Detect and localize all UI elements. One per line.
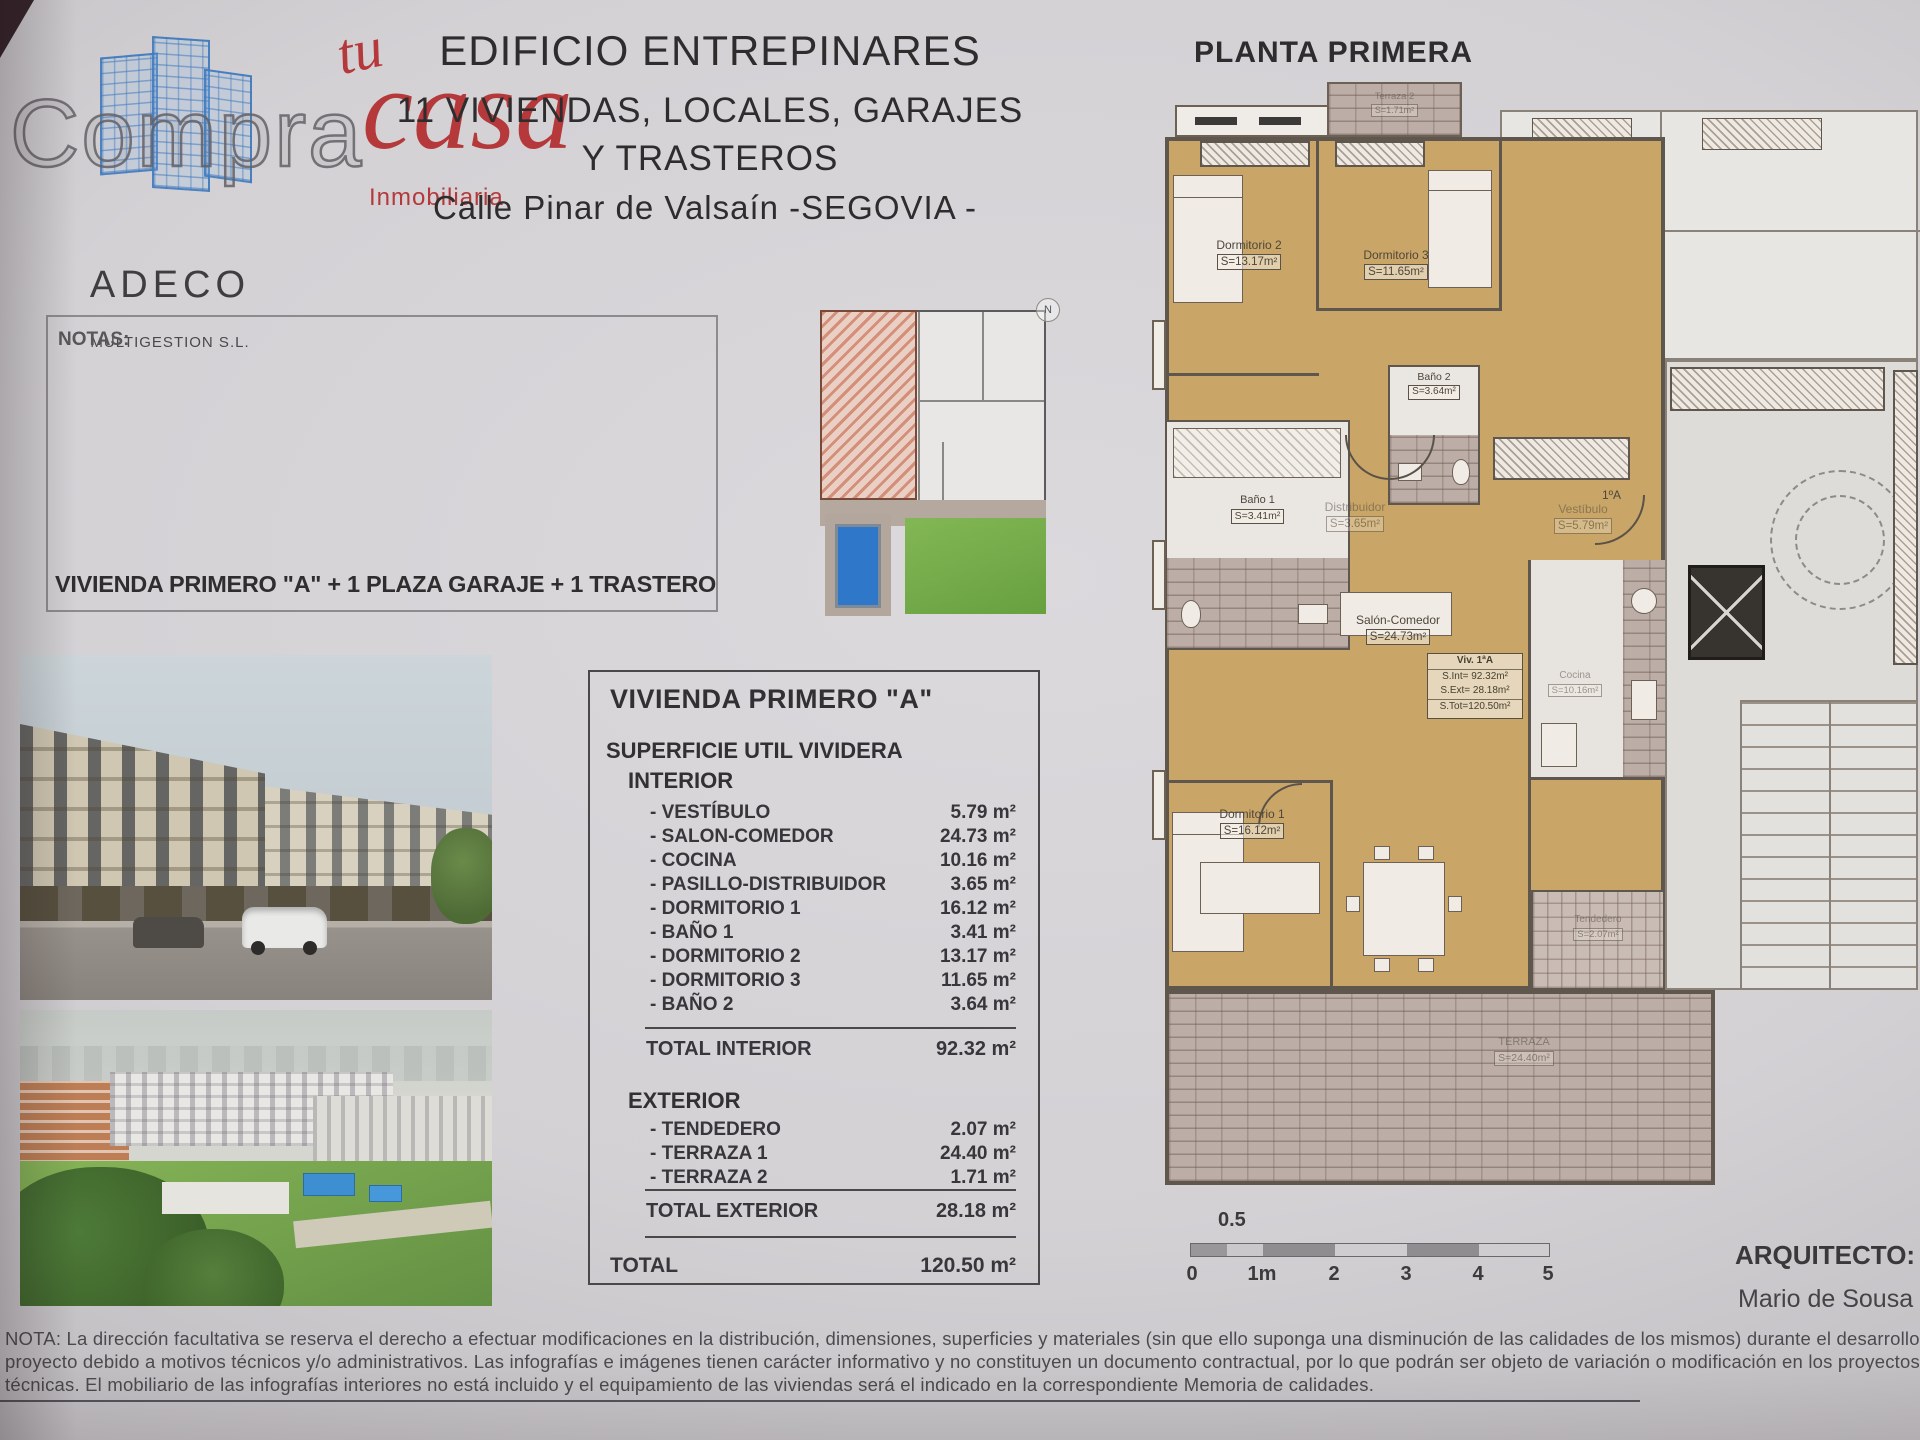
- floor-plan: Terraza 2 S=1.71m² Dormitorio 2 S=13.17m…: [1140, 70, 1920, 1190]
- row-value: 13.17 m²: [940, 946, 1016, 968]
- room-cocina: Cocina S=10.16m²: [1531, 560, 1665, 780]
- row-label: - BAÑO 1: [650, 922, 733, 943]
- vestibule-wardrobe: [1493, 437, 1630, 480]
- chair: [1346, 896, 1360, 912]
- bathtub: [1173, 428, 1341, 478]
- disclaimer-line: proyecto debido a motivos técnicos y/o a…: [5, 1351, 1920, 1373]
- chair: [1374, 846, 1390, 860]
- row-value: 120.50 m²: [920, 1254, 1016, 1278]
- plan-title: PLANTA PRIMERA: [1194, 36, 1473, 69]
- info-line: S.Tot=120.50m²: [1428, 699, 1522, 715]
- room-area: S=10.16m²: [1548, 684, 1603, 698]
- window-bay: [1152, 320, 1166, 390]
- room-name: Dormitorio 2: [1185, 238, 1313, 253]
- scale-tick: 0: [1186, 1263, 1197, 1286]
- front-gallery: [1175, 105, 1330, 137]
- room-dormitorio-1-label: Dormitorio 1 S=16.12m²: [1188, 807, 1316, 839]
- chair: [1418, 846, 1434, 860]
- disclaimer-line: técnicas. El mobiliario de las infografí…: [5, 1374, 1920, 1396]
- row-label: - TERRAZA 1: [650, 1143, 768, 1164]
- communal-closet-band: [1670, 367, 1885, 411]
- scanned-property-sheet: Compra tu casa Inmobiliaria ADECO MULTIG…: [0, 0, 1920, 1440]
- row-value: 24.40 m²: [940, 1143, 1016, 1165]
- photo-low-building: [162, 1182, 289, 1215]
- table-row: - BAÑO 23.64 m²: [650, 994, 1016, 1018]
- row-value: 11.65 m²: [941, 970, 1016, 992]
- row-value: 16.12 m²: [940, 898, 1016, 920]
- surface-table: VIVIENDA PRIMERO "A" SUPERFICIE UTIL VIV…: [588, 670, 1040, 1285]
- key-plan-pool: [835, 524, 881, 608]
- wall: [1316, 308, 1502, 311]
- room-name: Distribuidor: [1290, 500, 1420, 515]
- room-dormitorio-2-label: Dormitorio 2 S=13.17m²: [1185, 238, 1313, 270]
- table-row: - DORMITORIO 213.17 m²: [650, 946, 1016, 970]
- total-interior-row: TOTAL INTERIOR92.32 m²: [646, 1038, 1016, 1062]
- photo-white-slab: [313, 1096, 492, 1164]
- entry-door-label: 1ºA: [1602, 488, 1621, 502]
- table-row: - BAÑO 13.41 m²: [650, 922, 1016, 946]
- table-row: - PASILLO-DISTRIBUIDOR3.65 m²: [650, 874, 1016, 898]
- table-divider: [645, 1236, 1016, 1238]
- room-area: S=24.40m²: [1494, 1051, 1554, 1066]
- table-row: - TERRAZA 21.71 m²: [650, 1167, 1016, 1191]
- photo-corner-shadow: [0, 0, 34, 58]
- room-area: S=3.65m²: [1326, 516, 1384, 532]
- row-label: - VESTÍBULO: [650, 802, 770, 823]
- footer-rule: [0, 1400, 1640, 1402]
- table-row: - VESTÍBULO5.79 m²: [650, 802, 1016, 826]
- sink: [1298, 604, 1328, 624]
- row-label: TOTAL EXTERIOR: [646, 1200, 818, 1222]
- photo-pool: [369, 1185, 402, 1203]
- room-terraza-grande: TERRAZA S=24.40m²: [1165, 990, 1715, 1185]
- row-label: - DORMITORIO 2: [650, 946, 801, 967]
- wall: [1316, 137, 1319, 310]
- stair-core-circle-inner: [1795, 495, 1885, 585]
- unit-summary-line: VIVIENDA PRIMERO "A" + 1 PLAZA GARAJE + …: [55, 571, 715, 598]
- chair: [1418, 958, 1434, 972]
- room-area: S=16.12m²: [1220, 823, 1285, 839]
- row-label: - DORMITORIO 3: [650, 970, 801, 991]
- watermark-compra: Compra: [10, 86, 363, 182]
- doc-subtitle-1: 11 VIVIENDAS, LOCALES, GARAJES: [380, 92, 1040, 131]
- room-area: S=1.71m²: [1371, 104, 1418, 117]
- chair: [1448, 896, 1462, 912]
- toilet: [1452, 459, 1470, 485]
- scale-half-label: 0.5: [1218, 1209, 1246, 1232]
- side-balcony: [1893, 370, 1918, 665]
- elevator-shaft: [1688, 565, 1765, 660]
- room-salon-label: Salón-Comedor S=24.73m²: [1338, 613, 1458, 645]
- exterior-section-label: EXTERIOR: [628, 1088, 740, 1114]
- doc-title: EDIFICIO ENTREPINARES: [400, 28, 1020, 74]
- row-label: - PASILLO-DISTRIBUIDOR: [650, 874, 886, 895]
- row-value: 28.18 m²: [936, 1200, 1016, 1223]
- table-row: - SALON-COMEDOR24.73 m²: [650, 826, 1016, 850]
- architect-label: ARQUITECTO:: [1735, 1240, 1915, 1271]
- architect-name: Mario de Sousa Sanch: [1738, 1285, 1920, 1314]
- table-divider: [645, 1027, 1016, 1029]
- scale-tick: 4: [1472, 1263, 1483, 1286]
- key-plan: N: [820, 296, 1065, 618]
- wall: [1165, 373, 1319, 376]
- table-divider: [645, 1189, 1016, 1191]
- room-name: Cocina: [1535, 670, 1615, 683]
- row-value: 3.64 m²: [951, 994, 1016, 1016]
- key-plan-highlighted-unit: [820, 310, 917, 500]
- kitchen-sink: [1631, 588, 1657, 614]
- room-tendedero: Tendedero S=2.07m²: [1531, 890, 1665, 990]
- row-value: 3.41 m²: [951, 922, 1016, 944]
- doc-address: Calle Pinar de Valsaín -SEGOVIA -: [375, 190, 1035, 226]
- doc-subtitle-2: Y TRASTEROS: [380, 140, 1040, 179]
- wall: [1499, 137, 1502, 310]
- wall: [1330, 780, 1333, 990]
- room-distribuidor-label: Distribuidor S=3.65m²: [1290, 500, 1420, 532]
- scale-tick: 2: [1328, 1263, 1339, 1286]
- room-area: S=24.73m²: [1366, 629, 1431, 645]
- fridge: [1541, 723, 1577, 767]
- surface-table-subtitle: SUPERFICIE UTIL VIVIDERA: [606, 738, 903, 764]
- scale-tick: 5: [1542, 1263, 1553, 1286]
- notas-label: NOTAS:: [58, 329, 129, 351]
- info-line: S.Int= 92.32m²: [1428, 670, 1522, 685]
- table-row: - TENDEDERO2.07 m²: [650, 1119, 1016, 1143]
- table-row: - COCINA10.16 m²: [650, 850, 1016, 874]
- window-bay: [1152, 540, 1166, 610]
- room-bano-1: Baño 1 S=3.41m²: [1165, 420, 1350, 650]
- table-row: - DORMITORIO 116.12 m²: [650, 898, 1016, 922]
- scale-bar-strip: [1190, 1243, 1550, 1257]
- photo-shrub: [431, 828, 492, 925]
- table-row: - DORMITORIO 311.65 m²: [650, 970, 1016, 994]
- interior-section-label: INTERIOR: [628, 768, 733, 794]
- photo-street-view: [20, 655, 492, 1000]
- info-line: S.Ext= 28.18m²: [1428, 684, 1522, 699]
- window-bay: [1152, 770, 1166, 840]
- row-value: 10.16 m²: [940, 850, 1016, 872]
- compass-icon: N: [1036, 298, 1060, 322]
- row-label: TOTAL: [610, 1254, 678, 1277]
- row-value: 92.32 m²: [936, 1038, 1016, 1061]
- row-label: - BAÑO 2: [650, 994, 733, 1015]
- room-dormitorio-3-label: Dormitorio 3 S=11.65m²: [1332, 248, 1460, 280]
- wall: [1165, 780, 1333, 783]
- room-area: S=13.17m²: [1217, 254, 1282, 270]
- unit-info-box: Viv. 1ªA S.Int= 92.32m² S.Ext= 28.18m² S…: [1427, 653, 1523, 719]
- scale-tick: 1m: [1248, 1263, 1277, 1286]
- room-area: S=2.07m²: [1573, 928, 1622, 942]
- stove: [1631, 680, 1657, 720]
- photo-aerial-view: [20, 1010, 492, 1306]
- communal-stairs: [1740, 700, 1918, 990]
- sofa: [1200, 862, 1320, 914]
- row-value: 3.65 m²: [951, 874, 1016, 896]
- wardrobe: [1200, 141, 1310, 167]
- info-line: Viv. 1ªA: [1428, 654, 1522, 670]
- chair: [1374, 958, 1390, 972]
- room-area: S=3.41m²: [1231, 509, 1285, 524]
- wardrobe: [1335, 141, 1425, 167]
- row-value: 24.73 m²: [940, 826, 1016, 848]
- key-plan-garden: [905, 518, 1046, 614]
- dining-table: [1363, 862, 1445, 956]
- room-area: S=3.64m²: [1408, 385, 1460, 400]
- row-value: 1.71 m²: [951, 1167, 1016, 1189]
- scale-tick: 3: [1400, 1263, 1411, 1286]
- row-label: TOTAL INTERIOR: [646, 1038, 812, 1060]
- adeco-wordmark: ADECO: [80, 264, 260, 307]
- row-label: - COCINA: [650, 850, 737, 871]
- photo-car-dark: [133, 917, 204, 948]
- notas-box: NOTAS:: [46, 315, 718, 612]
- toilet: [1181, 600, 1201, 628]
- room-name: Tendedero: [1533, 914, 1663, 927]
- scale-bar: 0.5 0 1m 2 3 4 5: [1190, 1243, 1550, 1303]
- room-name: Dormitorio 3: [1332, 248, 1460, 263]
- row-label: - TERRAZA 2: [650, 1167, 768, 1188]
- row-label: - DORMITORIO 1: [650, 898, 801, 919]
- row-value: 5.79 m²: [951, 802, 1016, 824]
- row-label: - TENDEDERO: [650, 1119, 781, 1140]
- room-name: Salón-Comedor: [1338, 613, 1458, 628]
- row-value: 2.07 m²: [951, 1119, 1016, 1141]
- surface-table-title: VIVIENDA PRIMERO "A": [610, 684, 933, 715]
- table-row: - TERRAZA 124.40 m²: [650, 1143, 1016, 1167]
- grand-total-row: TOTAL120.50 m²: [610, 1254, 1016, 1278]
- photo-pool: [303, 1173, 355, 1197]
- room-name: Terraza 2: [1329, 91, 1460, 103]
- disclaimer-line: NOTA: La dirección facultativa se reserv…: [5, 1328, 1920, 1350]
- room-name: TERRAZA: [1459, 1036, 1589, 1050]
- row-label: - SALON-COMEDOR: [650, 826, 834, 847]
- room-area: S=11.65m²: [1364, 264, 1428, 280]
- total-exterior-row: TOTAL EXTERIOR28.18 m²: [646, 1200, 1016, 1224]
- room-terraza-2: Terraza 2 S=1.71m²: [1327, 82, 1462, 137]
- room-name: Baño 2: [1390, 371, 1478, 384]
- room-name: Dormitorio 1: [1188, 807, 1316, 822]
